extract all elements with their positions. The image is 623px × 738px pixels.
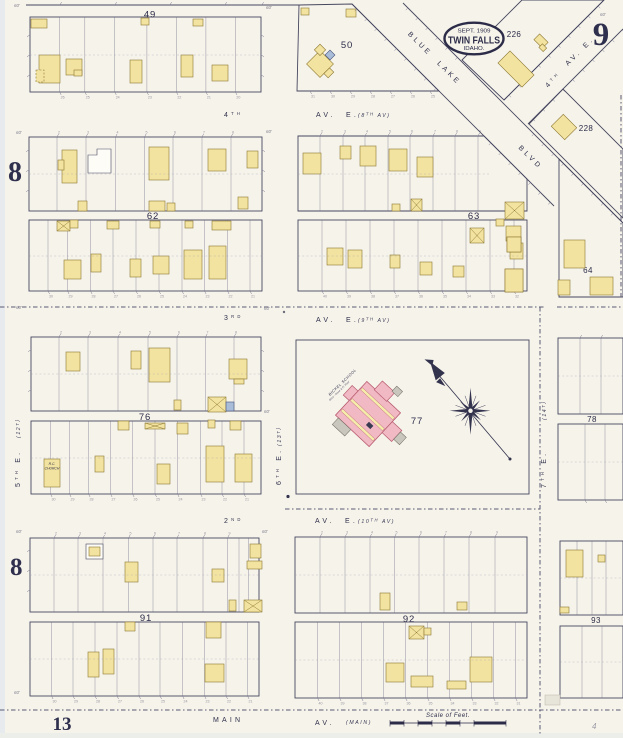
svg-text:3: 3 bbox=[79, 532, 81, 536]
svg-text:5: 5 bbox=[149, 331, 151, 335]
svg-text:4: 4 bbox=[592, 722, 597, 731]
svg-text:22: 22 bbox=[223, 498, 227, 502]
svg-text:60': 60' bbox=[14, 690, 20, 695]
svg-text:60': 60' bbox=[600, 12, 606, 17]
svg-text:22: 22 bbox=[229, 295, 233, 299]
svg-text:MAIN: MAIN bbox=[213, 717, 243, 724]
svg-text:60': 60' bbox=[266, 129, 272, 134]
svg-text:26: 26 bbox=[140, 700, 144, 704]
svg-text:60': 60' bbox=[262, 529, 268, 534]
svg-text:CHURCH: CHURCH bbox=[45, 467, 60, 471]
svg-text:34: 34 bbox=[467, 295, 471, 299]
svg-text:32: 32 bbox=[495, 702, 499, 706]
svg-text:33: 33 bbox=[473, 702, 477, 706]
svg-text:35: 35 bbox=[443, 295, 447, 299]
svg-text:7: 7 bbox=[434, 130, 436, 134]
svg-text:60': 60' bbox=[16, 130, 22, 135]
svg-text:5: 5 bbox=[389, 130, 391, 134]
svg-text:27: 27 bbox=[112, 498, 116, 502]
svg-text:6: 6 bbox=[411, 130, 413, 134]
svg-text:4: 4 bbox=[104, 532, 106, 536]
svg-text:2: 2 bbox=[58, 131, 60, 135]
svg-text:5: 5 bbox=[396, 531, 398, 535]
svg-text:Scale of Feet.: Scale of Feet. bbox=[426, 713, 470, 719]
svg-text:28: 28 bbox=[371, 95, 375, 99]
svg-text:13: 13 bbox=[53, 714, 72, 735]
svg-text:60': 60' bbox=[264, 409, 270, 414]
svg-text:6: 6 bbox=[174, 131, 176, 135]
svg-text:21: 21 bbox=[207, 96, 211, 100]
svg-text:50: 50 bbox=[341, 40, 353, 51]
svg-text:(MAIN): (MAIN) bbox=[346, 720, 372, 726]
svg-text:21: 21 bbox=[245, 498, 249, 502]
svg-text:8: 8 bbox=[232, 131, 234, 135]
svg-text:2: 2 bbox=[321, 130, 323, 134]
svg-text:60': 60' bbox=[266, 5, 272, 10]
svg-text:33: 33 bbox=[491, 295, 495, 299]
svg-text:29: 29 bbox=[351, 95, 355, 99]
svg-text:24: 24 bbox=[116, 96, 120, 100]
svg-text:8: 8 bbox=[235, 331, 237, 335]
svg-text:6: 6 bbox=[154, 532, 156, 536]
svg-text:30: 30 bbox=[331, 95, 335, 99]
svg-text:228: 228 bbox=[579, 124, 594, 133]
svg-text:7: 7 bbox=[207, 331, 209, 335]
svg-text:20: 20 bbox=[236, 96, 240, 100]
svg-text:24: 24 bbox=[179, 498, 183, 502]
svg-text:7TH E.: 7TH E. bbox=[540, 451, 548, 488]
svg-text:8: 8 bbox=[10, 554, 23, 581]
svg-text:6TH E.: 6TH E. bbox=[275, 448, 283, 485]
svg-text:4: 4 bbox=[371, 531, 373, 535]
svg-text:31: 31 bbox=[517, 702, 521, 706]
svg-text:40: 40 bbox=[323, 295, 327, 299]
svg-text:7: 7 bbox=[178, 532, 180, 536]
svg-text:92: 92 bbox=[403, 614, 415, 625]
svg-text:8: 8 bbox=[456, 130, 458, 134]
svg-text:34: 34 bbox=[451, 702, 455, 706]
svg-text:60': 60' bbox=[14, 3, 20, 8]
svg-text:9: 9 bbox=[593, 17, 610, 53]
svg-text:25: 25 bbox=[86, 96, 90, 100]
svg-text:38: 38 bbox=[363, 702, 367, 706]
svg-text:5TH E.: 5TH E. bbox=[14, 450, 22, 487]
svg-text:37: 37 bbox=[395, 295, 399, 299]
svg-text:21: 21 bbox=[249, 700, 253, 704]
svg-text:31: 31 bbox=[311, 95, 315, 99]
svg-text:6: 6 bbox=[420, 531, 422, 535]
svg-text:78: 78 bbox=[587, 415, 597, 424]
svg-text:29: 29 bbox=[71, 498, 75, 502]
svg-text:30: 30 bbox=[49, 295, 53, 299]
svg-text:32: 32 bbox=[515, 295, 519, 299]
svg-text:6: 6 bbox=[178, 331, 180, 335]
svg-text:AV. E.: AV. E. bbox=[316, 112, 359, 119]
svg-text:77: 77 bbox=[411, 416, 423, 427]
svg-text:30: 30 bbox=[52, 498, 56, 502]
svg-text:27: 27 bbox=[114, 295, 118, 299]
svg-text:39: 39 bbox=[341, 702, 345, 706]
svg-text:26: 26 bbox=[137, 295, 141, 299]
svg-text:226: 226 bbox=[507, 30, 522, 39]
svg-text:4: 4 bbox=[366, 130, 368, 134]
svg-text:8: 8 bbox=[8, 157, 22, 188]
svg-text:3: 3 bbox=[87, 131, 89, 135]
svg-text:23: 23 bbox=[206, 700, 210, 704]
svg-text:27: 27 bbox=[118, 700, 122, 704]
svg-text:28: 28 bbox=[96, 700, 100, 704]
svg-text:R.C.: R.C. bbox=[49, 462, 56, 466]
svg-text:9: 9 bbox=[496, 531, 498, 535]
svg-text:3: 3 bbox=[89, 331, 91, 335]
svg-text:30: 30 bbox=[53, 700, 57, 704]
svg-text:23: 23 bbox=[206, 295, 210, 299]
svg-text:IDAHO.: IDAHO. bbox=[464, 46, 485, 52]
svg-text:23: 23 bbox=[202, 498, 206, 502]
svg-text:25: 25 bbox=[156, 498, 160, 502]
svg-text:7: 7 bbox=[203, 131, 205, 135]
svg-text:22: 22 bbox=[227, 700, 231, 704]
svg-text:AV.: AV. bbox=[315, 720, 335, 727]
svg-text:5: 5 bbox=[130, 532, 132, 536]
svg-text:3: 3 bbox=[344, 130, 346, 134]
svg-text:26: 26 bbox=[61, 96, 65, 100]
svg-text:22: 22 bbox=[177, 96, 181, 100]
svg-text:8: 8 bbox=[204, 532, 206, 536]
svg-text:37: 37 bbox=[385, 702, 389, 706]
svg-text:35: 35 bbox=[429, 702, 433, 706]
svg-text:60': 60' bbox=[16, 305, 22, 310]
svg-text:7: 7 bbox=[445, 531, 447, 535]
svg-text:9: 9 bbox=[229, 532, 231, 536]
svg-text:93: 93 bbox=[591, 616, 601, 625]
svg-text:AV. E.: AV. E. bbox=[316, 317, 359, 324]
svg-text:39: 39 bbox=[347, 295, 351, 299]
svg-text:23: 23 bbox=[148, 96, 152, 100]
svg-text:40: 40 bbox=[319, 702, 323, 706]
svg-text:60': 60' bbox=[16, 529, 22, 534]
svg-text:25: 25 bbox=[160, 295, 164, 299]
svg-text:29: 29 bbox=[74, 700, 78, 704]
svg-text:2: 2 bbox=[60, 331, 62, 335]
svg-text:24: 24 bbox=[183, 295, 187, 299]
svg-text:27: 27 bbox=[391, 95, 395, 99]
svg-text:36: 36 bbox=[419, 295, 423, 299]
svg-text:25: 25 bbox=[161, 700, 165, 704]
svg-text:TWIN FALLS: TWIN FALLS bbox=[448, 35, 500, 47]
svg-text:38: 38 bbox=[371, 295, 375, 299]
svg-text:2: 2 bbox=[55, 532, 57, 536]
svg-text:8: 8 bbox=[470, 531, 472, 535]
svg-text:26: 26 bbox=[134, 498, 138, 502]
svg-text:60': 60' bbox=[264, 306, 270, 311]
svg-text:AV. E.: AV. E. bbox=[315, 518, 358, 525]
svg-text:29: 29 bbox=[69, 295, 73, 299]
svg-text:21: 21 bbox=[251, 295, 255, 299]
svg-text:(9TH AV): (9TH AV) bbox=[358, 317, 391, 325]
svg-text:3: 3 bbox=[346, 531, 348, 535]
svg-text:24: 24 bbox=[184, 700, 188, 704]
svg-text:36: 36 bbox=[407, 702, 411, 706]
svg-text:25: 25 bbox=[431, 95, 435, 99]
svg-text:2: 2 bbox=[321, 531, 323, 535]
svg-text:4: 4 bbox=[119, 331, 121, 335]
svg-text:26: 26 bbox=[411, 95, 415, 99]
svg-text:(8TH AV): (8TH AV) bbox=[358, 112, 391, 120]
svg-text:28: 28 bbox=[92, 295, 96, 299]
svg-text:5: 5 bbox=[146, 131, 148, 135]
svg-text:4: 4 bbox=[117, 131, 119, 135]
svg-text:28: 28 bbox=[90, 498, 94, 502]
